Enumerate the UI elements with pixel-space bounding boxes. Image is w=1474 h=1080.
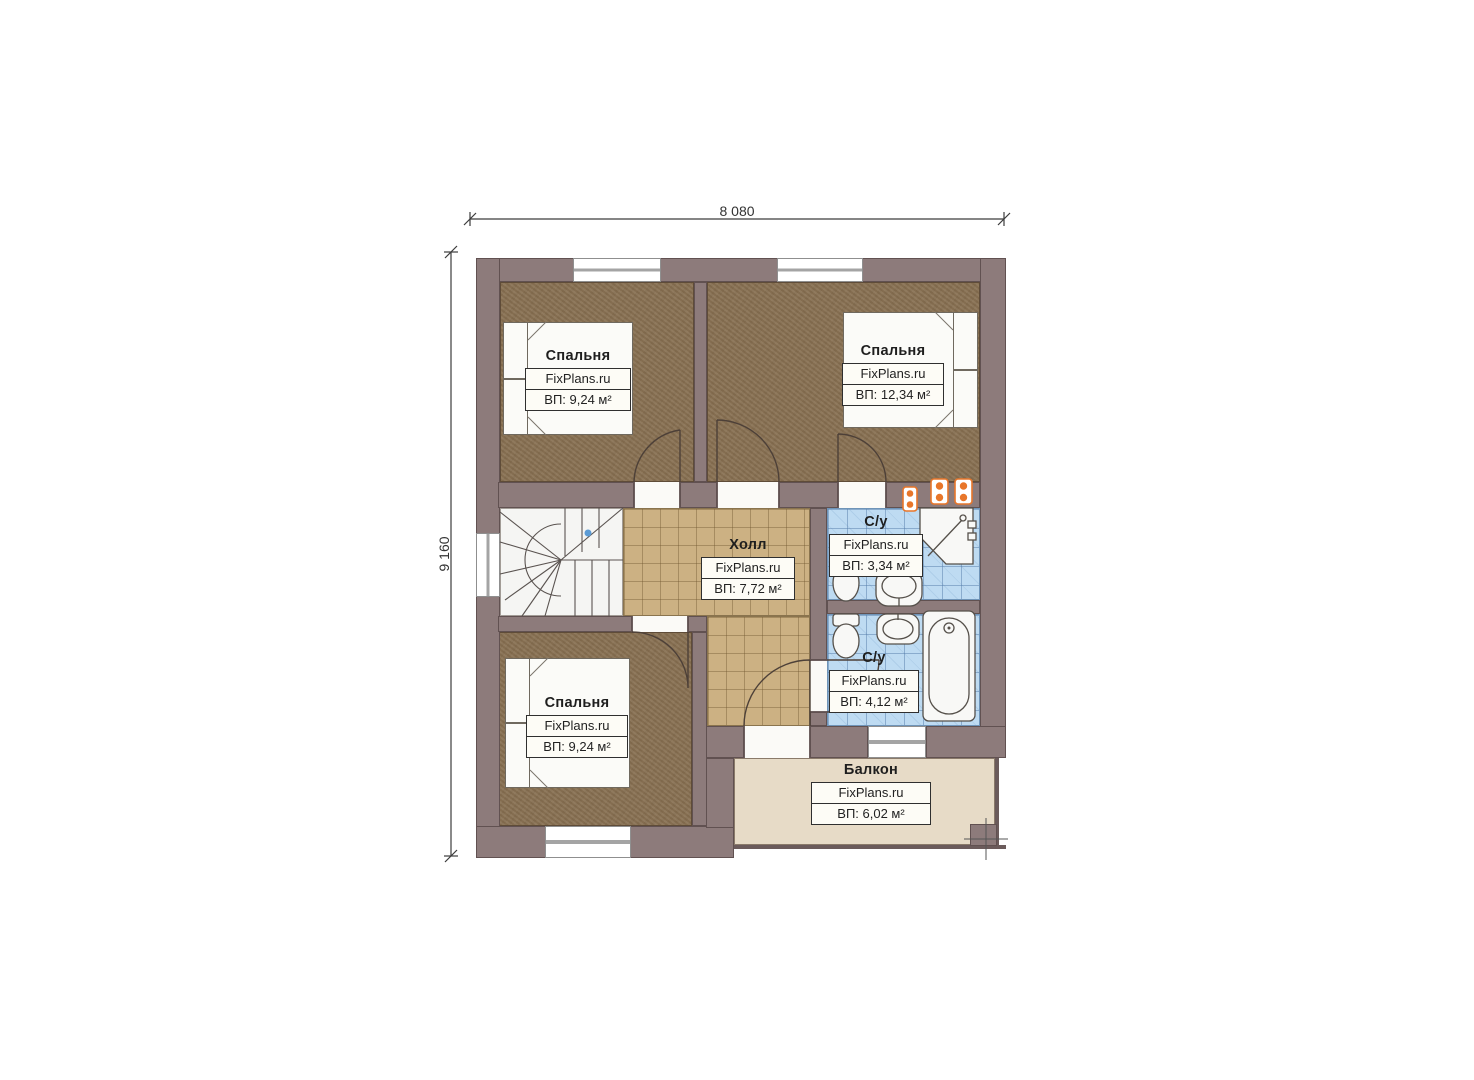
nightstand-top-right-2: [953, 370, 978, 428]
label-bedroom-top-left: Спальня FixPlans.ru ВП: 9,24 м²: [525, 348, 631, 411]
watermark-text: FixPlans.ru: [830, 671, 918, 691]
door-opening-bedroom-top-left: [634, 482, 680, 508]
room-area-text: ВП: 4,12 м²: [830, 691, 918, 712]
window-bottom-left: [545, 826, 631, 858]
room-name: С/у: [829, 650, 919, 666]
wall-under-top-rooms-a: [498, 482, 634, 508]
watermark-text: FixPlans.ru: [812, 783, 930, 803]
room-info-box: FixPlans.ru ВП: 3,34 м²: [829, 534, 923, 577]
room-info-box: FixPlans.ru ВП: 9,24 м²: [526, 715, 628, 758]
room-name: Спальня: [526, 695, 628, 711]
floor-hall-lower: [707, 616, 810, 726]
window-top-1: [573, 258, 661, 282]
room-name: Балкон: [811, 762, 931, 778]
label-hall: Холл FixPlans.ru ВП: 7,72 м²: [701, 537, 795, 600]
room-area-text: ВП: 9,24 м²: [526, 389, 630, 410]
label-balcony: Балкон FixPlans.ru ВП: 6,02 м²: [811, 762, 931, 825]
wall-exterior-bottom-right-b: [810, 726, 868, 758]
wall-exterior-bottom-right-a: [706, 726, 744, 758]
wall-between-bathrooms: [827, 600, 980, 614]
room-name: Спальня: [525, 348, 631, 364]
dimension-label-width: 8 080: [719, 203, 754, 219]
room-info-box: FixPlans.ru ВП: 12,34 м²: [842, 363, 944, 406]
dimension-label-height: 9 160: [436, 536, 452, 571]
label-bathroom-top: С/у FixPlans.ru ВП: 3,34 м²: [829, 514, 923, 577]
watermark-text: FixPlans.ru: [526, 369, 630, 389]
room-area-text: ВП: 9,24 м²: [527, 736, 627, 757]
wall-under-top-rooms-c: [779, 482, 838, 508]
window-stairs-left: [476, 533, 500, 597]
room-name: Холл: [701, 537, 795, 553]
floor-stairwell: [500, 508, 623, 616]
room-info-box: FixPlans.ru ВП: 7,72 м²: [701, 557, 795, 600]
wall-hall-bath-a: [810, 508, 827, 660]
wall-above-bedroom3-a: [498, 616, 632, 632]
window-top-2: [777, 258, 863, 282]
label-bathroom-bottom: С/у FixPlans.ru ВП: 4,12 м²: [829, 650, 919, 713]
watermark-text: FixPlans.ru: [702, 558, 794, 578]
door-opening-ensuite-bath: [838, 482, 886, 508]
watermark-text: FixPlans.ru: [843, 364, 943, 384]
balcony-parapet-bottom: [734, 845, 1006, 849]
label-bedroom-top-right: Спальня FixPlans.ru ВП: 12,34 м²: [842, 343, 944, 406]
nightstand-top-right-1: [953, 312, 978, 370]
wall-under-top-rooms-b: [680, 482, 717, 508]
wall-partition-bedrooms: [694, 282, 707, 482]
wall-hall-bath-b: [810, 712, 827, 726]
room-area-text: ВП: 7,72 м²: [702, 578, 794, 599]
room-name: С/у: [829, 514, 923, 530]
wall-above-bedroom3-b: [688, 616, 707, 632]
watermark-text: FixPlans.ru: [830, 535, 922, 555]
wall-exterior-top: [476, 258, 1006, 282]
window-bathroom-balcony: [868, 726, 926, 758]
door-opening-bathroom-bottom: [810, 660, 827, 712]
room-area-text: ВП: 6,02 м²: [812, 803, 930, 824]
room-info-box: FixPlans.ru ВП: 9,24 м²: [525, 368, 631, 411]
room-info-box: FixPlans.ru ВП: 6,02 м²: [811, 782, 931, 825]
wall-exterior-bottom-right-c: [926, 726, 1006, 758]
door-opening-bedroom-top-right: [717, 482, 779, 508]
door-opening-bedroom-bottom: [632, 616, 688, 632]
door-opening-balcony: [744, 726, 810, 758]
label-bedroom-bottom-left: Спальня FixPlans.ru ВП: 9,24 м²: [526, 695, 628, 758]
wall-exterior-right: [980, 258, 1006, 758]
wall-under-top-rooms-d: [886, 482, 980, 508]
floor-plan-canvas: 8 080 9 160 Спальня FixPlans.ru ВП: 9,24…: [0, 0, 1474, 1080]
room-area-text: ВП: 12,34 м²: [843, 384, 943, 405]
wall-bedroom3-right: [692, 632, 707, 826]
wall-corner-chunk: [706, 758, 734, 828]
watermark-text: FixPlans.ru: [527, 716, 627, 736]
room-area-text: ВП: 3,34 м²: [830, 555, 922, 576]
room-info-box: FixPlans.ru ВП: 4,12 м²: [829, 670, 919, 713]
room-name: Спальня: [842, 343, 944, 359]
balcony-corner-block: [970, 824, 997, 846]
